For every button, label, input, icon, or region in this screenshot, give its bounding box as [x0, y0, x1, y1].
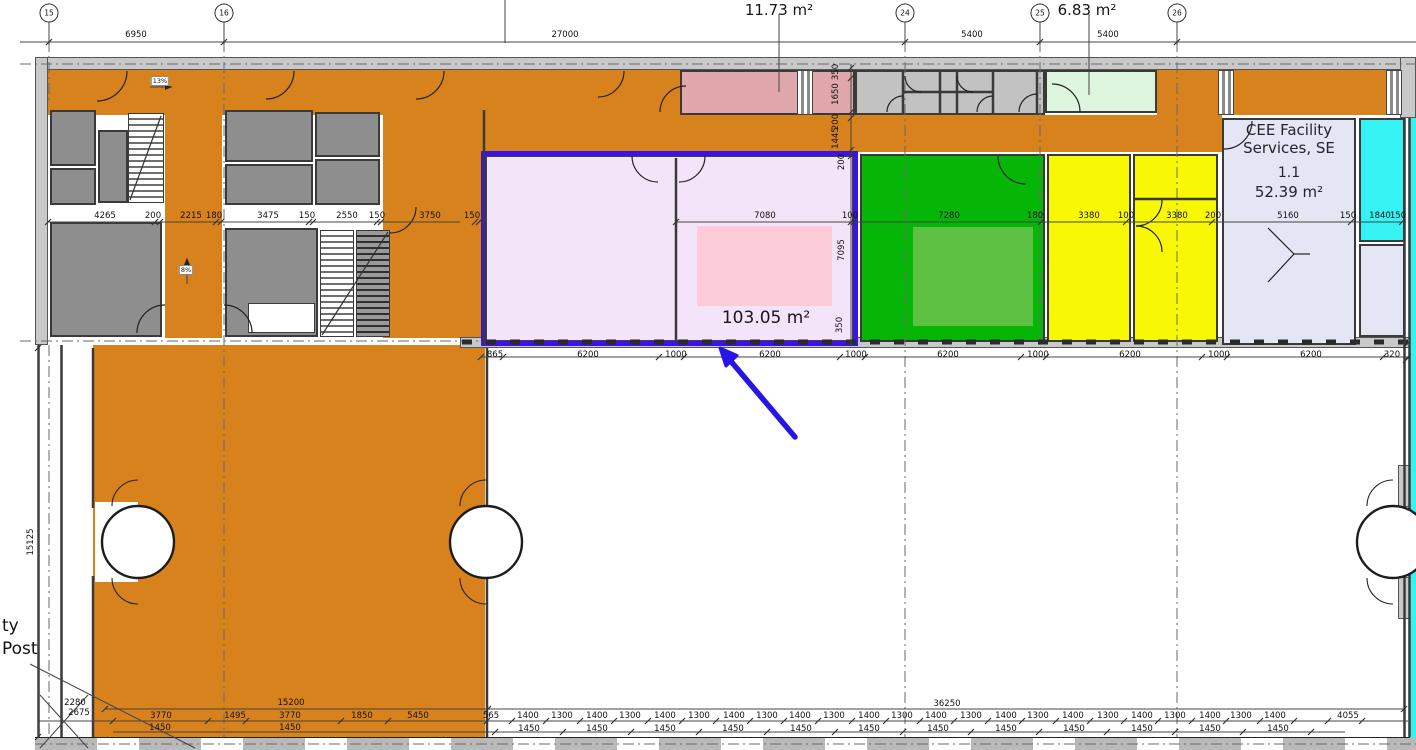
dimension-label: 1850 [351, 712, 373, 721]
dimension-label: 1300 [960, 712, 982, 721]
dimension-label: 2280 [64, 699, 86, 708]
cee-line1: CEE Facility [1224, 121, 1354, 139]
dimension-label: 1650 [832, 83, 841, 105]
dimension-label: 3750 [419, 212, 441, 221]
dimension-label: 1000 [665, 351, 687, 360]
dimension-label: 1300 [551, 712, 573, 721]
dimension-label: 6200 [1300, 351, 1322, 360]
dimension-label: 7095 [838, 239, 847, 261]
revolving-doors [95, 480, 1416, 604]
dimension-label: 1400 [1199, 712, 1221, 721]
area-label-storage: 11.73 m² [745, 1, 813, 19]
dimension-label: 4055 [1337, 712, 1359, 721]
dimension-label: 3770 [150, 712, 172, 721]
dimension-label: 3475 [257, 212, 279, 221]
dimension-label: 200 [145, 212, 161, 221]
dimension-label: 1450 [927, 725, 949, 734]
cee-room-label: CEE Facility Services, SE 1.1 52.39 m² [1224, 121, 1354, 201]
dimension-label: 1400 [995, 712, 1017, 721]
dimension-label: 1400 [1131, 712, 1153, 721]
dimension-label: 180 [206, 212, 222, 221]
dimension-label: 3380 [1166, 212, 1188, 221]
post-text-line1: ty [2, 615, 19, 638]
dimension-label: 320 [1384, 351, 1400, 360]
grid-bubble: 15 [40, 4, 59, 23]
grid-bubble: 16 [215, 4, 234, 23]
dimension-label: 15125 [27, 528, 36, 555]
dimension-label: 1400 [586, 712, 608, 721]
dimension-label: 1000 [1208, 351, 1230, 360]
dimension-label: 100 [842, 212, 858, 221]
dimension-label: 1400 [517, 712, 539, 721]
dimension-label: 1450 [722, 725, 744, 734]
dimension-label: 1300 [619, 712, 641, 721]
dimension-label: 200 [1205, 212, 1221, 221]
dimension-label: 1450 [149, 724, 171, 733]
dimension-label: 1300 [1230, 712, 1252, 721]
dimension-label: 7280 [938, 212, 960, 221]
dimension-label: 1450 [654, 725, 676, 734]
dimension-label: 5400 [1097, 31, 1119, 40]
area-label-selected: 103.05 m² [722, 308, 810, 328]
dimension-label: 1400 [925, 712, 947, 721]
grid-bubble: 25 [1031, 4, 1050, 23]
dimension-label: 1450 [995, 725, 1017, 734]
dimension-label: 150 [1340, 212, 1356, 221]
cee-area: 52.39 m² [1224, 183, 1354, 201]
dimension-label: 1450 [586, 725, 608, 734]
dimension-label: 2550 [336, 212, 358, 221]
area-label-mint: 6.83 m² [1058, 1, 1117, 19]
selection-arrow [720, 348, 795, 437]
dimension-label: 5160 [1277, 212, 1299, 221]
grid-centerlines [20, 20, 1416, 744]
dimension-label: 2215 [180, 212, 202, 221]
dimension-label: 1495 [224, 712, 246, 721]
dimension-label: 1445 [832, 127, 841, 149]
dimension-label: 865 [487, 351, 503, 360]
ramp-arrowheads [165, 84, 190, 265]
dimension-label: 1400 [858, 712, 880, 721]
dimension-label: 1400 [789, 712, 811, 721]
dimension-label: 1840 [1369, 212, 1391, 221]
dimension-label: 1300 [1097, 712, 1119, 721]
dimension-label: 1400 [1062, 712, 1084, 721]
dimension-ticks [35, 39, 1411, 740]
dimension-label: 1300 [891, 712, 913, 721]
dimension-label: 5450 [407, 712, 429, 721]
dimension-label: 1400 [654, 712, 676, 721]
stair-diagonals [130, 116, 388, 335]
floor-plan-canvas: 1516242526 69502700054005400 42652002215… [0, 0, 1416, 750]
door-arcs [97, 71, 1310, 333]
dimension-label: 1450 [1199, 725, 1221, 734]
cee-line2: Services, SE [1224, 139, 1354, 157]
dimension-label: 6200 [1119, 351, 1141, 360]
dimension-label: 1450 [1063, 725, 1085, 734]
grid-bubble: 24 [896, 4, 915, 23]
dimension-label: 6200 [759, 351, 781, 360]
dimension-label: 1450 [1267, 725, 1289, 734]
dimension-label: 350 [836, 317, 845, 333]
dimension-label: 1300 [1164, 712, 1186, 721]
dimension-label: 1450 [518, 725, 540, 734]
dimension-label: 5400 [961, 31, 983, 40]
dimension-label: 6200 [577, 351, 599, 360]
interior-walls [39, 70, 1410, 737]
dimension-label: 150 [1390, 212, 1406, 221]
dimension-label: 36250 [933, 700, 960, 709]
dimension-label: 1300 [823, 712, 845, 721]
dimension-label: 1300 [756, 712, 778, 721]
dimension-label: 1400 [723, 712, 745, 721]
dimension-label: 1400 [1264, 712, 1286, 721]
dimension-label: 1300 [1027, 712, 1049, 721]
dimension-label: 1450 [279, 724, 301, 733]
grid-bubble: 26 [1168, 4, 1187, 23]
dimension-label: 150 [299, 212, 315, 221]
plan-linework [0, 0, 1416, 750]
dimension-label: 6950 [125, 31, 147, 40]
dimension-label: 7080 [754, 212, 776, 221]
dimension-label: 100 [1118, 212, 1134, 221]
dimension-label: 1450 [858, 725, 880, 734]
dimension-label: 1300 [688, 712, 710, 721]
dimension-label: 565 [483, 712, 499, 721]
dimension-label: 3770 [279, 712, 301, 721]
ramp-label-8: 8% [179, 265, 193, 275]
dimension-label: 1450 [790, 725, 812, 734]
dimension-label: 15200 [277, 699, 304, 708]
cee-number: 1.1 [1224, 165, 1354, 181]
dimension-label: 4265 [94, 212, 116, 221]
dimension-label: 27000 [551, 31, 578, 40]
dimension-label: 1450 [1131, 725, 1153, 734]
dimension-label: 6200 [937, 351, 959, 360]
dimension-label: 200 [838, 154, 847, 170]
dimension-label: 150 [369, 212, 385, 221]
dimension-label: 3380 [1078, 212, 1100, 221]
dimension-label: 1000 [845, 351, 867, 360]
dimension-label: 350 [832, 64, 841, 80]
dimension-label: 180 [1027, 212, 1043, 221]
ramp-label-13: 13% [151, 76, 169, 86]
dimension-lines [20, 0, 1416, 748]
dimension-label: 1000 [1027, 351, 1049, 360]
dimension-label: 150 [464, 212, 480, 221]
dimension-label: 2675 [68, 709, 90, 718]
post-text-line2: Post [2, 638, 38, 661]
